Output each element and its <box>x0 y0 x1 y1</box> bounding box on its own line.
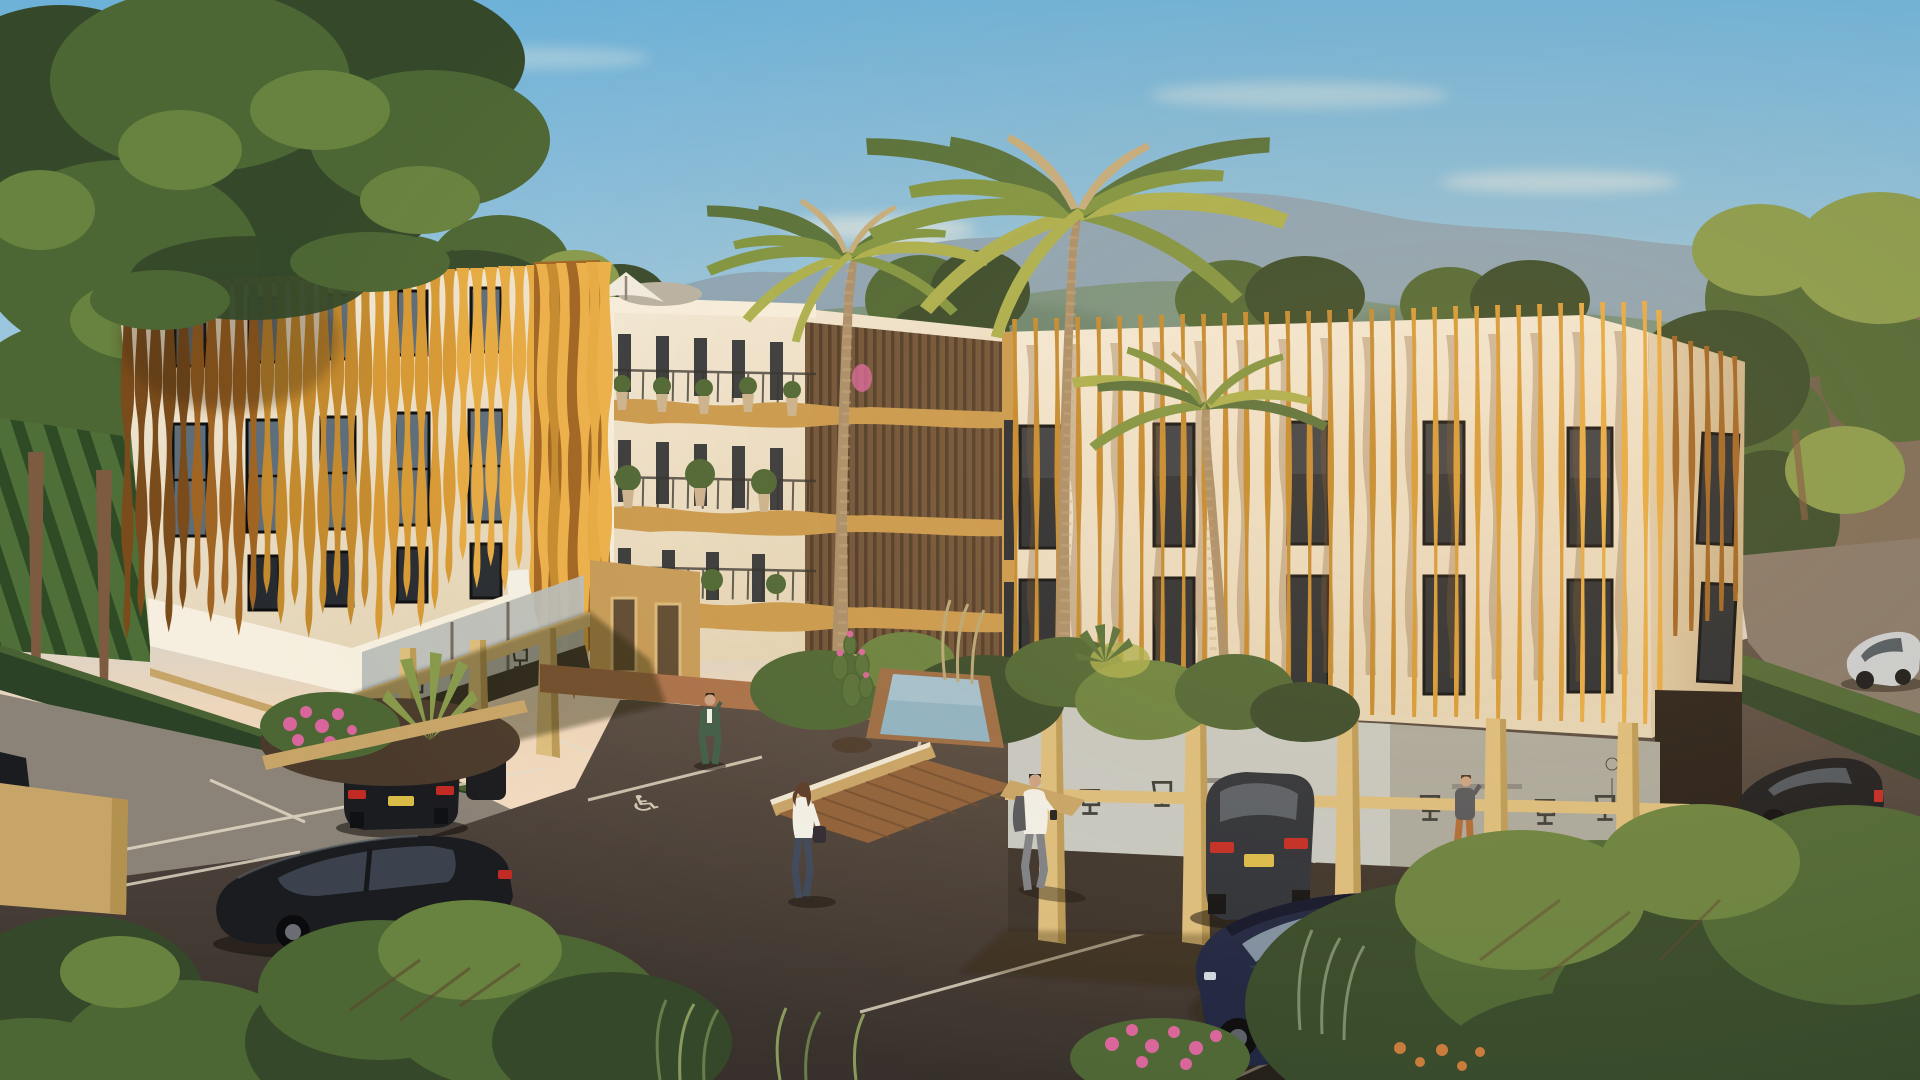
scene-canvas: ♿ <box>0 0 1920 1080</box>
sun-glow-overlay <box>0 0 1920 1080</box>
architectural-rendering: ♿ <box>0 0 1920 1080</box>
